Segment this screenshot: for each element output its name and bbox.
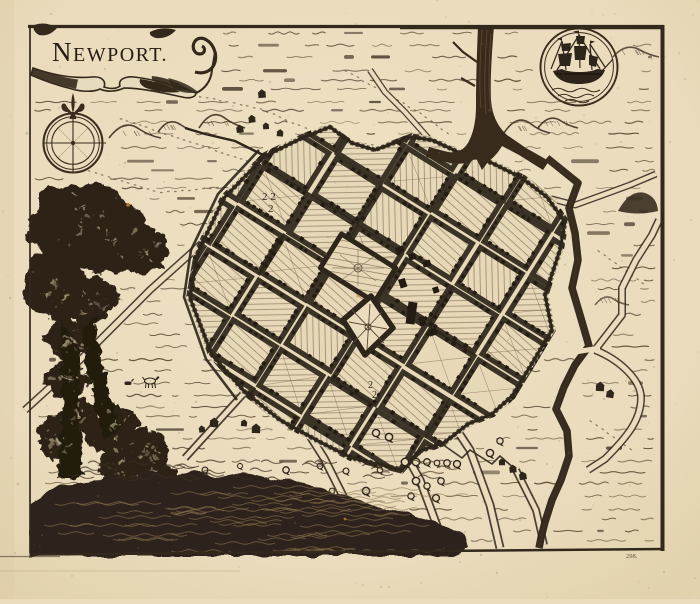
svg-text:298.: 298. [626, 553, 638, 560]
svg-text:2: 2 [372, 390, 377, 401]
svg-text:2 2: 2 2 [262, 191, 276, 203]
svg-text:2: 2 [268, 203, 274, 215]
